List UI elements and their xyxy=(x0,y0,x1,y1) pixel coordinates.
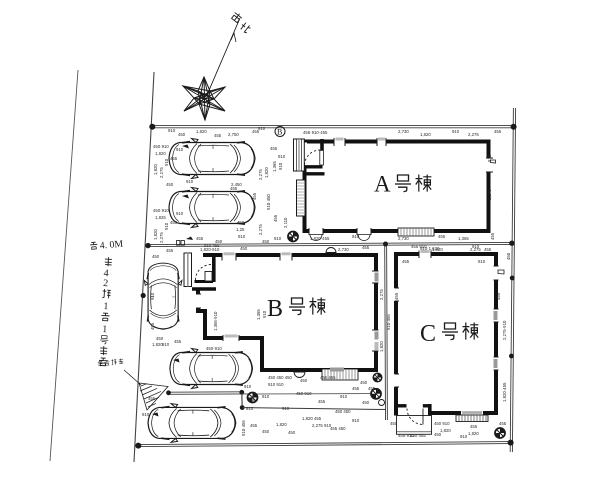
svg-text:455: 455 xyxy=(174,339,182,344)
svg-text:1,820·455: 1,820·455 xyxy=(310,236,330,241)
svg-text:910: 910 xyxy=(186,179,194,184)
svg-text:450: 450 xyxy=(262,429,270,434)
svg-text:455·910: 455·910 xyxy=(398,433,414,438)
svg-text:455: 455 xyxy=(170,156,178,161)
svg-text:1,820: 1,820 xyxy=(468,431,479,436)
svg-text:450: 450 xyxy=(166,182,174,187)
svg-text:C: C xyxy=(420,321,436,347)
svg-text:455: 455 xyxy=(252,192,257,200)
svg-text:2,275 910: 2,275 910 xyxy=(312,423,332,428)
svg-text:1,365: 1,365 xyxy=(458,236,469,241)
svg-text:910: 910 xyxy=(262,310,267,318)
svg-text:455: 455 xyxy=(490,232,495,240)
svg-text:910: 910 xyxy=(258,126,266,131)
svg-text:910: 910 xyxy=(274,236,282,241)
svg-text:455: 455 xyxy=(170,220,178,225)
svg-text:450 450: 450 450 xyxy=(335,409,351,414)
svg-text:2,275: 2,275 xyxy=(487,189,492,200)
svg-text:450·910: 450·910 xyxy=(153,208,169,213)
svg-text:2,275: 2,275 xyxy=(468,132,479,137)
svg-text:910: 910 xyxy=(244,384,252,389)
svg-text:450: 450 xyxy=(506,252,511,260)
svg-text:1,820: 1,820 xyxy=(153,229,158,240)
svg-text:1,820 455: 1,820 455 xyxy=(302,416,322,421)
svg-text:450 450 450: 450 450 450 xyxy=(268,375,293,380)
svg-text:1,820: 1,820 xyxy=(264,167,269,178)
svg-text:450: 450 xyxy=(156,336,164,341)
svg-text:910: 910 xyxy=(150,292,155,300)
svg-text:2,275: 2,275 xyxy=(159,167,164,178)
svg-text:910: 910 xyxy=(478,259,486,264)
svg-text:450: 450 xyxy=(434,432,442,437)
svg-text:910: 910 xyxy=(340,394,348,399)
svg-text:1,820: 1,820 xyxy=(276,422,287,427)
svg-text:1,820: 1,820 xyxy=(420,132,431,137)
svg-text:450: 450 xyxy=(237,220,245,225)
svg-text:1: 1 xyxy=(102,324,108,335)
svg-text:455: 455 xyxy=(394,292,399,300)
svg-text:910: 910 xyxy=(472,244,480,249)
svg-text:1,820: 1,820 xyxy=(196,129,207,134)
svg-text:455: 455 xyxy=(270,146,278,151)
svg-text:2,730: 2,730 xyxy=(398,129,409,134)
svg-text:455: 455 xyxy=(494,129,502,134)
svg-text:1,820: 1,820 xyxy=(379,341,384,352)
svg-text:1,820: 1,820 xyxy=(440,428,451,433)
svg-text:910: 910 xyxy=(487,154,492,162)
svg-text:910: 910 xyxy=(460,434,468,439)
svg-text:455: 455 xyxy=(248,398,256,403)
svg-text:1,820: 1,820 xyxy=(155,151,166,156)
svg-text:455 910: 455 910 xyxy=(411,244,427,249)
svg-text:450 910: 450 910 xyxy=(434,421,450,426)
svg-text:1,365·910: 1,365·910 xyxy=(213,311,218,331)
svg-text:2,730: 2,730 xyxy=(398,236,409,241)
svg-text:910·455: 910·455 xyxy=(386,314,391,330)
svg-text:910: 910 xyxy=(452,129,460,134)
svg-text:910: 910 xyxy=(142,412,150,417)
svg-text:1,25: 1,25 xyxy=(236,227,245,232)
svg-text:910·455: 910·455 xyxy=(241,420,246,436)
svg-text:910: 910 xyxy=(282,406,290,411)
svg-text:B: B xyxy=(267,296,283,322)
svg-text:910: 910 xyxy=(278,154,286,159)
svg-text:910: 910 xyxy=(168,128,176,133)
svg-text:455: 455 xyxy=(484,247,492,252)
svg-text:450: 450 xyxy=(390,421,398,426)
svg-text:2,110: 2,110 xyxy=(283,217,288,228)
svg-text:2,275: 2,275 xyxy=(159,232,164,243)
svg-text:455: 455 xyxy=(318,399,326,404)
svg-text:455: 455 xyxy=(273,214,278,222)
svg-text:910: 910 xyxy=(278,162,283,170)
svg-text:A: A xyxy=(374,172,391,197)
svg-text:910: 910 xyxy=(246,406,254,411)
svg-text:2,275·910: 2,275·910 xyxy=(502,320,507,340)
svg-text:455: 455 xyxy=(352,386,360,391)
svg-text:455: 455 xyxy=(402,259,410,264)
svg-text:2,275: 2,275 xyxy=(258,224,263,235)
svg-text:910: 910 xyxy=(352,418,360,423)
svg-text:450·910: 450·910 xyxy=(153,144,169,149)
svg-text:910 910: 910 910 xyxy=(268,382,284,387)
svg-text:450: 450 xyxy=(262,239,270,244)
svg-text:4. 0M: 4. 0M xyxy=(99,239,124,252)
svg-text:450: 450 xyxy=(360,380,368,385)
svg-text:910·450: 910·450 xyxy=(266,194,271,210)
svg-text:1,365: 1,365 xyxy=(256,309,261,320)
svg-text:455 450: 455 450 xyxy=(330,426,346,431)
svg-text:1,820: 1,820 xyxy=(432,247,443,252)
svg-text:910: 910 xyxy=(164,158,169,166)
svg-text:B: B xyxy=(277,128,282,137)
svg-text:450: 450 xyxy=(300,378,308,383)
svg-text:455: 455 xyxy=(470,424,478,429)
svg-text:1,825: 1,825 xyxy=(155,215,166,220)
svg-text:455: 455 xyxy=(148,396,156,401)
svg-text:450·910: 450·910 xyxy=(206,346,222,351)
svg-text:455: 455 xyxy=(150,322,155,330)
svg-text:910: 910 xyxy=(176,211,184,216)
svg-text:1,365: 1,365 xyxy=(272,161,277,172)
svg-text:450: 450 xyxy=(152,254,160,259)
svg-text:910: 910 xyxy=(176,147,184,152)
svg-text:450: 450 xyxy=(178,132,186,137)
svg-text:2,275: 2,275 xyxy=(258,169,263,180)
svg-text:455: 455 xyxy=(166,248,174,253)
svg-text:455: 455 xyxy=(214,133,222,138)
svg-text:2,730: 2,730 xyxy=(338,247,349,252)
svg-text:455: 455 xyxy=(496,292,501,300)
svg-text:455: 455 xyxy=(196,236,204,241)
svg-text:450: 450 xyxy=(240,246,248,251)
svg-text:910: 910 xyxy=(162,342,170,347)
svg-text:450: 450 xyxy=(288,430,296,435)
svg-text:1,820: 1,820 xyxy=(153,164,158,175)
svg-text:450 910: 450 910 xyxy=(296,391,312,396)
svg-text:455: 455 xyxy=(368,386,376,391)
svg-text:455: 455 xyxy=(438,234,446,239)
svg-text:1: 1 xyxy=(103,301,109,312)
svg-text:910 455: 910 455 xyxy=(204,243,220,248)
svg-text:455: 455 xyxy=(499,421,507,426)
svg-text:910: 910 xyxy=(262,394,270,399)
svg-text:455: 455 xyxy=(362,245,370,250)
svg-text:2,275: 2,275 xyxy=(379,289,384,300)
svg-text:450: 450 xyxy=(362,400,370,405)
svg-text:455: 455 xyxy=(250,423,258,428)
svg-text:910: 910 xyxy=(352,234,360,239)
svg-text:1,820·455: 1,820·455 xyxy=(502,382,507,402)
svg-text:2: 2 xyxy=(103,278,109,289)
svg-text:455: 455 xyxy=(230,186,238,191)
svg-text:2,750: 2,750 xyxy=(228,132,239,137)
svg-text:910: 910 xyxy=(164,222,169,230)
svg-text:455·910·455: 455·910·455 xyxy=(303,130,328,135)
svg-text:455 455: 455 455 xyxy=(320,375,336,380)
svg-text:910: 910 xyxy=(238,234,246,239)
